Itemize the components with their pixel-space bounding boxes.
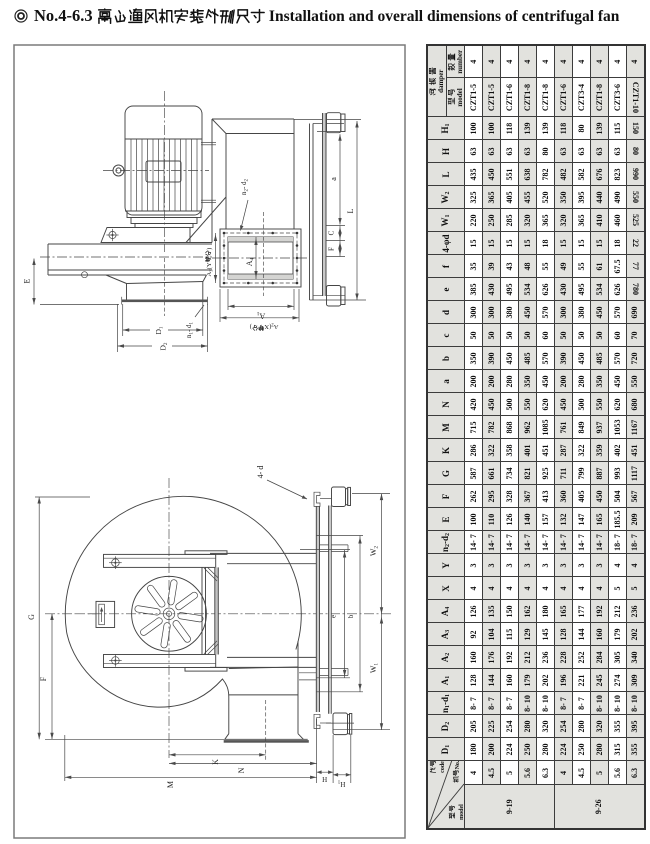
svg-text:F: F: [39, 676, 48, 681]
svg-text:W1: W1: [369, 663, 380, 674]
svg-text:A4: A4: [245, 257, 256, 266]
svg-text:H1: H1: [337, 778, 345, 788]
svg-text:A3(Y: A3(Y: [206, 262, 214, 276]
svg-text:L: L: [346, 208, 355, 213]
svg-text:e: e: [330, 615, 338, 618]
svg-text:n1- d1: n1- d1: [185, 321, 194, 338]
svg-text:F: F: [328, 247, 336, 251]
svg-text:a: a: [329, 177, 338, 181]
svg-text:): ): [250, 323, 252, 330]
svg-text:4- d: 4- d: [256, 466, 265, 479]
svg-text:W2: W2: [369, 546, 380, 557]
svg-text:A1: A1: [256, 310, 265, 321]
svg-text:A2(X: A2(X: [264, 322, 278, 330]
svg-text:D1: D1: [154, 326, 165, 334]
svg-text:b: b: [347, 614, 355, 618]
svg-text:M: M: [166, 781, 175, 788]
svg-text:H: H: [322, 776, 327, 784]
svg-text:N: N: [237, 767, 246, 773]
svg-text:K: K: [211, 759, 220, 765]
svg-text:E: E: [23, 278, 32, 283]
svg-text:): ): [206, 248, 213, 250]
svg-text:D2: D2: [159, 342, 170, 350]
svg-text:n2- d2: n2- d2: [240, 178, 249, 195]
svg-text:C: C: [328, 230, 336, 235]
svg-text:G: G: [27, 614, 36, 620]
